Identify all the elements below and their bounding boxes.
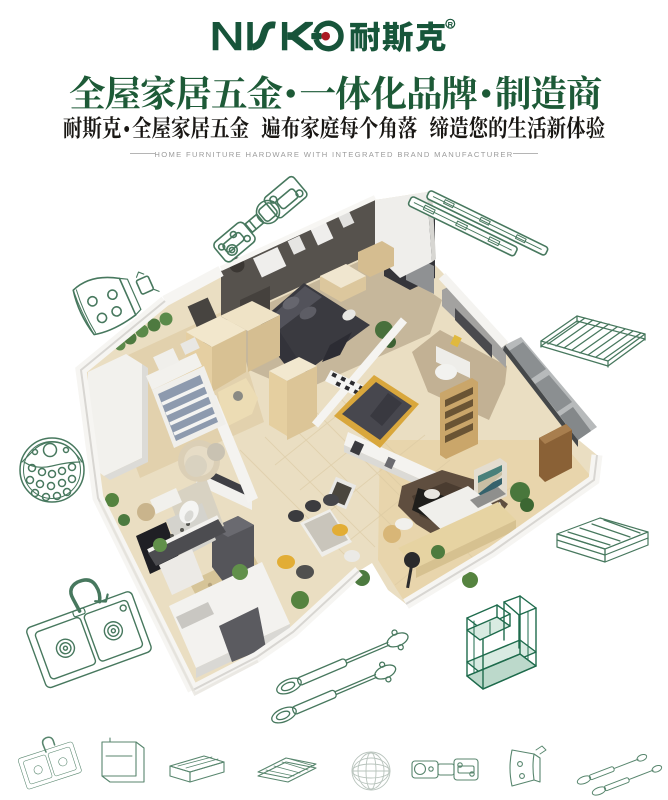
svg-text:R: R <box>448 20 454 29</box>
svg-text:HOME FURNITURE HARDWARE WITH I: HOME FURNITURE HARDWARE WITH INTEGRATED … <box>154 150 513 159</box>
